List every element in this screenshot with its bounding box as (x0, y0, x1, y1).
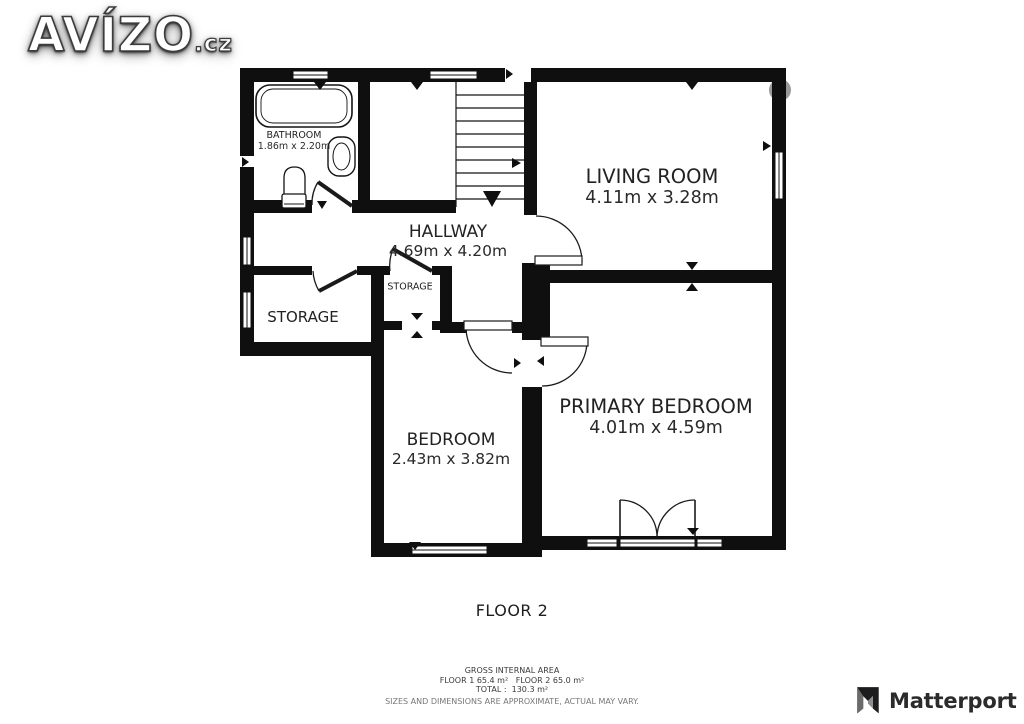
room-dims: 1.86m x 2.20m (258, 141, 330, 152)
room-label-bathroom: BATHROOM 1.86m x 2.20m (258, 130, 330, 152)
floor-caption: FLOOR 2 (0, 601, 1024, 620)
room-label-storage: STORAGE (267, 309, 338, 327)
floor-areas: FLOOR 1 65.4 m² FLOOR 2 65.0 m² (0, 676, 1024, 686)
toilet-icon (284, 167, 305, 196)
avizo-logo: AVÍZO.cz (28, 8, 233, 63)
room-name: BATHROOM (258, 130, 330, 141)
matterport-wordmark: Matterport (889, 689, 1017, 713)
room-name: BEDROOM (392, 430, 510, 450)
gross-internal-area-label: GROSS INTERNAL AREA (0, 666, 1024, 676)
room-dims: 4.69m x 4.20m (389, 242, 507, 260)
matterport-icon (855, 686, 881, 716)
room-name: STORAGE (267, 309, 338, 327)
avizo-logo-suffix: .cz (194, 31, 233, 57)
room-name: LIVING ROOM (585, 165, 719, 188)
room-label-bedroom: BEDROOM 2.43m x 3.82m (392, 430, 510, 468)
room-name: STORAGE (387, 281, 432, 292)
avizo-logo-text: AVÍZO (28, 8, 194, 63)
room-label-living-room: LIVING ROOM 4.11m x 3.28m (585, 165, 719, 209)
room-name: PRIMARY BEDROOM (559, 395, 752, 418)
matterport-watermark: Matterport (855, 685, 1017, 717)
room-dims: 4.11m x 3.28m (585, 188, 719, 209)
room-label-storage-small: STORAGE (387, 281, 432, 292)
room-name: HALLWAY (389, 222, 507, 242)
stairs-icon (456, 82, 524, 207)
room-dims: 4.01m x 4.59m (559, 418, 752, 439)
room-label-primary-bedroom: PRIMARY BEDROOM 4.01m x 4.59m (559, 395, 752, 439)
room-label-hallway: HALLWAY 4.69m x 4.20m (389, 222, 507, 260)
room-dims: 2.43m x 3.82m (392, 450, 510, 468)
